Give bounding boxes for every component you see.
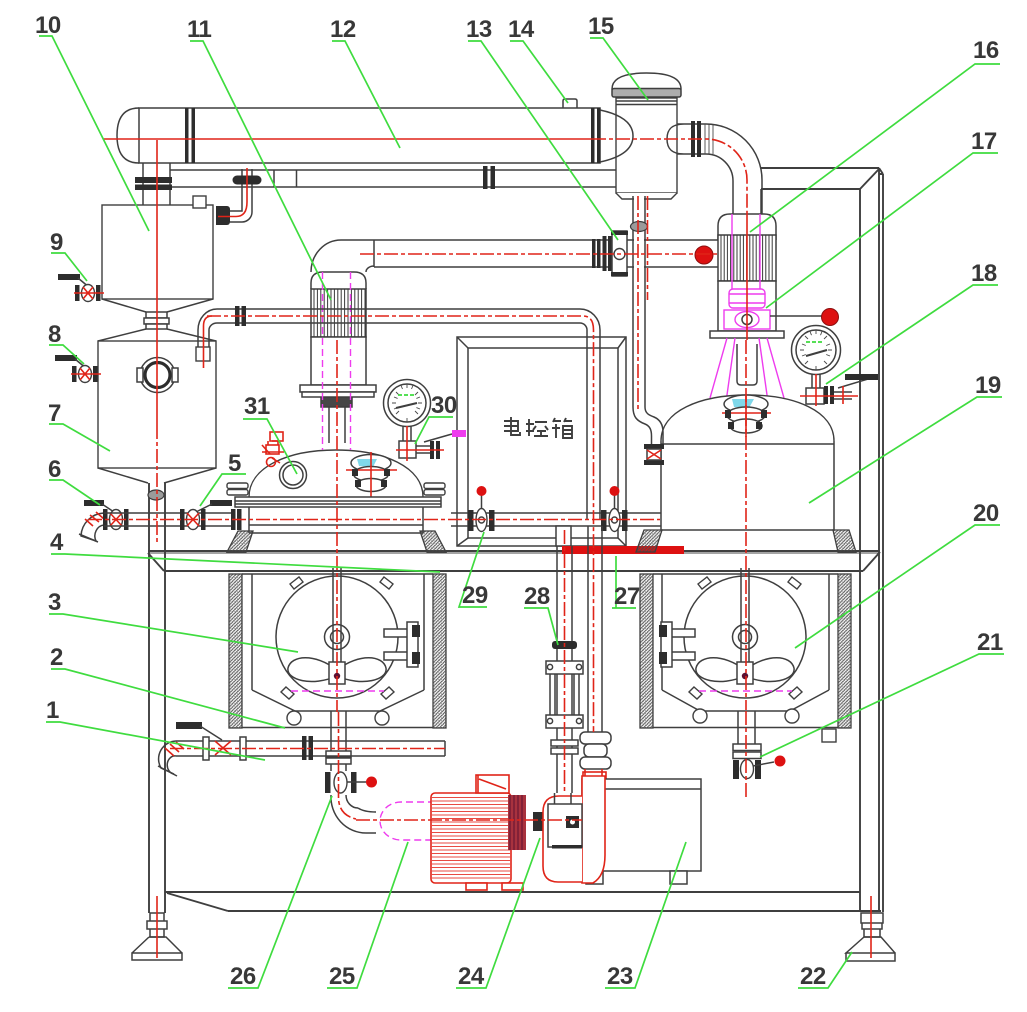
svg-text:15: 15 bbox=[588, 13, 614, 40]
svg-text:11: 11 bbox=[187, 16, 212, 43]
svg-text:20: 20 bbox=[973, 500, 999, 527]
svg-text:19: 19 bbox=[975, 372, 1001, 399]
svg-text:7: 7 bbox=[48, 400, 61, 427]
svg-text:8: 8 bbox=[48, 321, 61, 348]
svg-text:4: 4 bbox=[50, 529, 64, 556]
svg-text:13: 13 bbox=[466, 16, 492, 43]
svg-text:5: 5 bbox=[228, 450, 241, 477]
svg-text:14: 14 bbox=[508, 16, 535, 43]
svg-text:18: 18 bbox=[971, 260, 997, 287]
svg-text:30: 30 bbox=[431, 392, 457, 419]
svg-text:12: 12 bbox=[330, 16, 356, 43]
svg-text:21: 21 bbox=[977, 629, 1003, 656]
svg-text:25: 25 bbox=[329, 963, 355, 990]
svg-text:22: 22 bbox=[800, 963, 826, 990]
svg-text:28: 28 bbox=[524, 583, 550, 610]
svg-text:2: 2 bbox=[50, 644, 63, 671]
svg-text:1: 1 bbox=[46, 697, 59, 724]
svg-text:24: 24 bbox=[458, 963, 485, 990]
svg-text:9: 9 bbox=[50, 229, 63, 256]
svg-text:16: 16 bbox=[973, 37, 999, 64]
svg-text:31: 31 bbox=[244, 393, 270, 420]
svg-text:3: 3 bbox=[48, 589, 61, 616]
svg-text:26: 26 bbox=[230, 963, 256, 990]
svg-text:29: 29 bbox=[462, 582, 488, 609]
svg-text:6: 6 bbox=[48, 456, 61, 483]
svg-text:23: 23 bbox=[607, 963, 633, 990]
svg-text:10: 10 bbox=[35, 12, 61, 39]
svg-text:17: 17 bbox=[971, 128, 997, 155]
svg-text:27: 27 bbox=[614, 583, 640, 610]
